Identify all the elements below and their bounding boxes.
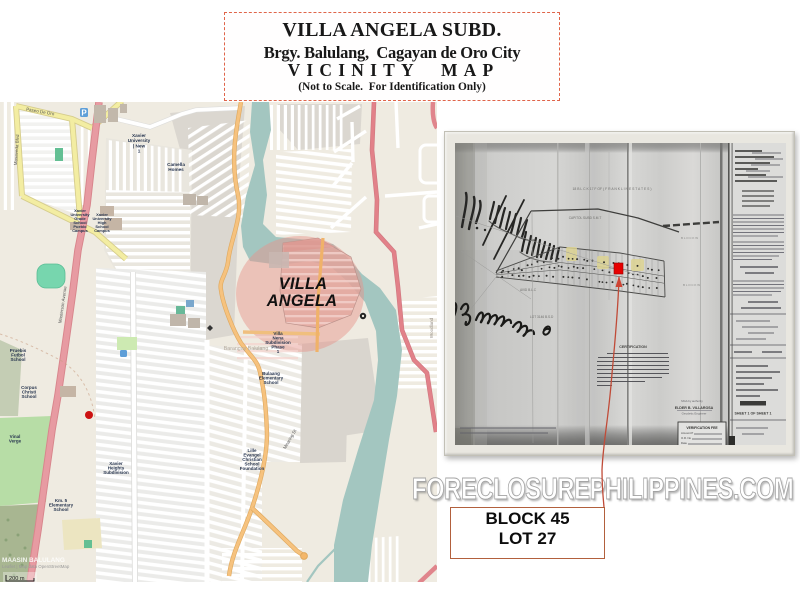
svg-text:VILLA: VILLA bbox=[279, 275, 328, 293]
svg-text:School: School bbox=[263, 380, 278, 385]
svg-text:18 B L C K 17 F OF ( F R: 18 B L C K 17 F OF ( F R A N K L I N E S… bbox=[572, 187, 651, 191]
svg-text:ANGELA: ANGELA bbox=[266, 292, 338, 310]
svg-text:200 m: 200 m bbox=[9, 576, 25, 582]
svg-text:School: School bbox=[21, 394, 36, 399]
svg-text:AVID B.L.C: AVID B.L.C bbox=[520, 288, 537, 292]
svg-text:SHEET 1 OF SHEET 1: SHEET 1 OF SHEET 1 bbox=[735, 412, 772, 416]
svg-text:Leaflet | Map data OpenStreetM: Leaflet | Map data OpenStreetMap bbox=[2, 564, 70, 569]
svg-text:Date: Date bbox=[681, 441, 687, 445]
svg-text:MGA by authority: MGA by authority bbox=[681, 399, 703, 403]
svg-text:Xavier: Xavier bbox=[132, 133, 146, 138]
svg-text:LOT 3146 B.S.D: LOT 3146 B.S.D bbox=[530, 315, 554, 319]
svg-text:Geodetic Engineer: Geodetic Engineer bbox=[682, 412, 707, 416]
svg-text:Amount P: Amount P bbox=[681, 431, 693, 435]
svg-text:School: School bbox=[10, 357, 25, 362]
svg-text:B L O C K W: B L O C K W bbox=[683, 283, 700, 287]
svg-text:Barangay Balulang: Barangay Balulang bbox=[224, 346, 269, 352]
svg-text:1: 1 bbox=[138, 149, 141, 154]
svg-text:P: P bbox=[81, 109, 87, 118]
svg-text:Subdivision: Subdivision bbox=[103, 470, 129, 475]
svg-text:Foundation: Foundation bbox=[240, 466, 265, 471]
svg-text:Woodland: Woodland bbox=[429, 317, 434, 338]
svg-text:CERTIFICATION: CERTIFICATION bbox=[619, 345, 647, 349]
svg-text:B L O C K W: B L O C K W bbox=[681, 236, 698, 240]
svg-text:CAPITOL SUBD S.M.T: CAPITOL SUBD S.M.T bbox=[569, 216, 602, 220]
svg-text:MAASIN BALULANG: MAASIN BALULANG bbox=[2, 557, 65, 564]
svg-text:VERIFICATION FEE: VERIFICATION FEE bbox=[686, 426, 718, 430]
svg-text:University: University bbox=[128, 138, 151, 143]
svg-text:Camella: Camella bbox=[167, 162, 185, 167]
svg-text:Campus: Campus bbox=[94, 228, 110, 233]
svg-text:Homes: Homes bbox=[168, 167, 184, 172]
svg-text:| New: | New bbox=[133, 143, 146, 148]
svg-text:School: School bbox=[53, 507, 68, 512]
svg-text:ELDER B. VILLAROSA: ELDER B. VILLAROSA bbox=[675, 406, 714, 410]
svg-text:O.R. No: O.R. No bbox=[681, 436, 692, 440]
svg-text:Verge: Verge bbox=[9, 439, 22, 444]
svg-text:Campus: Campus bbox=[72, 228, 88, 233]
